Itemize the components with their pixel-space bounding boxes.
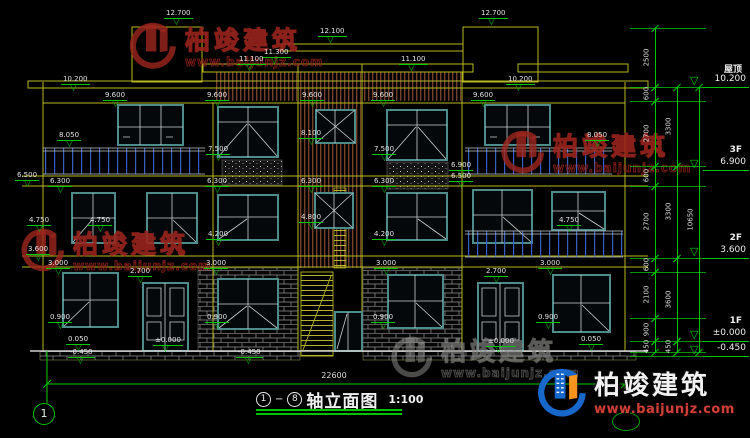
elevation-triangle-icon: ▽ [162,346,183,352]
elevation-marker: 6.300▽ [372,177,396,193]
elevation-marker: 6.300▽ [205,177,229,193]
elevation-triangle-icon: ▽ [308,223,323,229]
floor-label: 3F [698,145,742,155]
extension-line [630,258,706,259]
elevation-marker: -0.450▽ [236,348,263,364]
brand-logo-icon [534,366,588,424]
elevation-triangle-icon: ▽ [271,58,291,64]
elevation-triangle-icon: ▽ [383,269,398,275]
title-scale: 1:100 [388,393,423,406]
elevation-triangle-icon: ▽ [545,323,560,329]
elevation-triangle-icon: ▽ [493,277,508,283]
floor-elevation: 10.200 [694,74,746,84]
axis-end-bubble: 8 [287,392,302,407]
elevation-marker: 6.300▽ [299,177,323,193]
dimension-value: 2700 [643,111,652,155]
elevation-marker: 0.900▽ [205,313,229,329]
elevation-marker: 2.700▽ [128,267,152,283]
elevation-triangle-icon: ▽ [547,269,562,275]
brand-logo: 柏竣建筑 www.baijunjz.com [534,366,735,424]
title-underline [256,409,402,411]
elevation-marker: 3.000▽ [204,259,228,275]
elevation-triangle-icon: ▽ [112,101,127,107]
elevation-triangle-icon: ▽ [97,226,112,232]
elevation-triangle-icon: ▽ [495,347,516,353]
dimension-value: 600 [643,72,652,116]
elevation-triangle-icon: ▽ [137,277,152,283]
elevation-triangle-icon: ▽ [458,182,473,188]
elevation-marker: 12.700▽ [479,9,508,25]
elevation-marker: 3.000▽ [46,259,70,275]
elevation-triangle-icon: ▽ [515,85,535,91]
dimension-value: 3300 [665,190,674,234]
elevation-triangle-icon: ▽ [36,226,51,232]
elevation-triangle-icon: ▽ [381,240,396,246]
floor-level-line [703,170,749,171]
elevation-marker: 7.500▽ [206,145,230,161]
floor-elevation: ±0.000 [694,328,746,338]
floor-level-line [703,87,749,88]
elevation-triangle-icon: ▽ [57,323,72,329]
elevation-triangle-icon: ▽ [215,155,230,161]
elevation-marker: 4.200▽ [206,230,230,246]
elevation-marker: 4.200▽ [372,230,396,246]
elevation-triangle-icon: ▽ [408,65,428,71]
elevation-marker: 6.300▽ [48,177,72,193]
elevation-triangle-icon: ▽ [245,358,263,364]
elevation-marker: 4.800▽ [299,213,323,229]
extension-line [630,101,706,102]
elevation-marker: 11.100▽ [237,55,266,71]
elevation-marker: 10.200▽ [506,75,535,91]
elevation-marker: 4.750▽ [27,216,51,232]
elevation-marker: 11.300▽ [262,48,291,64]
extension-line [630,28,706,29]
elevation-triangle-icon: ▽ [380,323,395,329]
elevation-triangle-icon: ▽ [55,269,70,275]
elevation-triangle-icon: ▽ [381,155,396,161]
elevation-triangle-icon: ▽ [308,139,323,145]
elevation-marker: 9.600▽ [300,91,324,107]
elevation-marker: 9.600▽ [371,91,395,107]
brand-name: 柏竣建筑 [594,373,735,399]
floor-level-line [703,258,749,259]
elevation-marker: 3.000▽ [374,259,398,275]
floor-elevation: -0.450 [694,343,746,353]
dimension-value: 450 [665,324,674,368]
elevation-triangle-icon: ▽ [588,345,603,351]
dimension-value: 3300 [665,104,674,148]
elevation-triangle-icon: ▽ [77,358,95,364]
extension-line [630,87,706,88]
dimension-line [699,87,700,352]
extension-line [630,272,706,273]
elevation-triangle-icon: ▽ [480,101,495,107]
elevation-triangle-icon: ▽ [594,141,609,147]
cad-elevation-sheet: 柏竣建筑 www.baijunjz.com 柏竣建筑 www.baijunjz.… [0,0,750,438]
elevation-triangle-icon: ▽ [66,141,81,147]
elevation-marker: 10.200▽ [61,75,90,91]
elevation-triangle-icon: ▽ [380,101,395,107]
elevation-marker: 9.600▽ [103,91,127,107]
elevation-marker: 8.050▽ [585,131,609,147]
elevation-triangle-icon: ▽ [309,101,324,107]
floor-elevation: 3.600 [694,245,746,255]
dimension-value: 600 [643,154,652,198]
elevation-triangle-icon: ▽ [381,187,396,193]
elevation-marker: 11.100▽ [399,55,428,71]
elevation-marker: ±0.000▽ [486,337,516,353]
elevation-marker: 8.050▽ [57,131,81,147]
elevation-marker: 6.500▽ [449,172,473,188]
elevation-marker: 7.500▽ [372,145,396,161]
overall-width-dimension: 22600 [299,371,369,380]
elevation-triangle-icon: ▽ [246,65,266,71]
axis-start-bubble: 1 [256,392,271,407]
elevation-marker: 3.000▽ [538,259,562,275]
elevation-triangle-icon: ▽ [488,19,508,25]
dimension-line [677,87,678,352]
elevation-triangle-icon: ▽ [24,181,39,187]
elevation-marker: 0.050▽ [579,335,603,351]
elevation-marker: 6.500▽ [15,171,39,187]
elevation-marker: 12.100▽ [318,27,347,43]
floor-label: 2F [698,233,742,243]
brand-url: www.baijunjz.com [594,402,735,417]
axis-bubble: 1 [33,403,55,425]
elevation-marker: 4.750▽ [88,216,112,232]
elevation-triangle-icon: ▽ [308,187,323,193]
elevation-marker: 4.750▽ [557,216,581,232]
elevation-marker: ±0.000▽ [153,336,183,352]
elevation-triangle-icon: ▽ [213,269,228,275]
elevation-triangle-icon: ▽ [214,187,229,193]
elevation-triangle-icon: ▽ [173,19,193,25]
elevation-marker: 9.600▽ [205,91,229,107]
elevation-triangle-icon: ▽ [214,101,229,107]
elevation-marker: 9.600▽ [471,91,495,107]
dimension-value: 2700 [643,200,652,244]
floor-label: 1F [698,316,742,326]
floor-level-line [703,341,749,342]
title-dash: − [275,394,283,405]
floor-level-line [703,356,749,357]
elevation-marker: 0.900▽ [371,313,395,329]
elevation-marker: 0.900▽ [536,313,560,329]
extension-line [630,186,706,187]
elevation-triangle-icon: ▽ [57,187,72,193]
elevation-marker: -0.450▽ [68,348,95,364]
elevation-triangle-icon: ▽ [566,226,581,232]
floor-elevation: 6.900 [694,157,746,167]
elevation-marker: 8.100▽ [299,129,323,145]
dimension-value: 10650 [687,197,696,241]
elevation-triangle-icon: ▽ [215,240,230,246]
elevation-marker: 2.700▽ [484,267,508,283]
dimension-line [655,28,656,352]
elevation-triangle-icon: ▽ [327,37,347,43]
elevation-triangle-icon: ▽ [70,85,90,91]
dimension-value: 3600 [665,277,674,321]
elevation-marker: 12.700▽ [164,9,193,25]
elevation-triangle-icon: ▽ [214,323,229,329]
title-underline [256,413,402,415]
elevation-marker: 0.900▽ [48,313,72,329]
dimension-value: 450 [643,324,652,368]
